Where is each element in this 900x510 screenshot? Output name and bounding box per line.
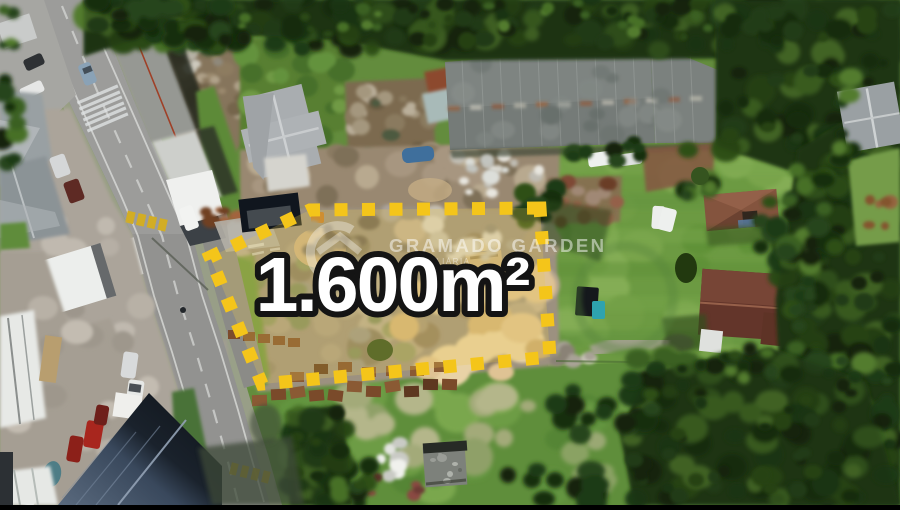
svg-text:1.600m²: 1.600m² bbox=[256, 242, 530, 328]
